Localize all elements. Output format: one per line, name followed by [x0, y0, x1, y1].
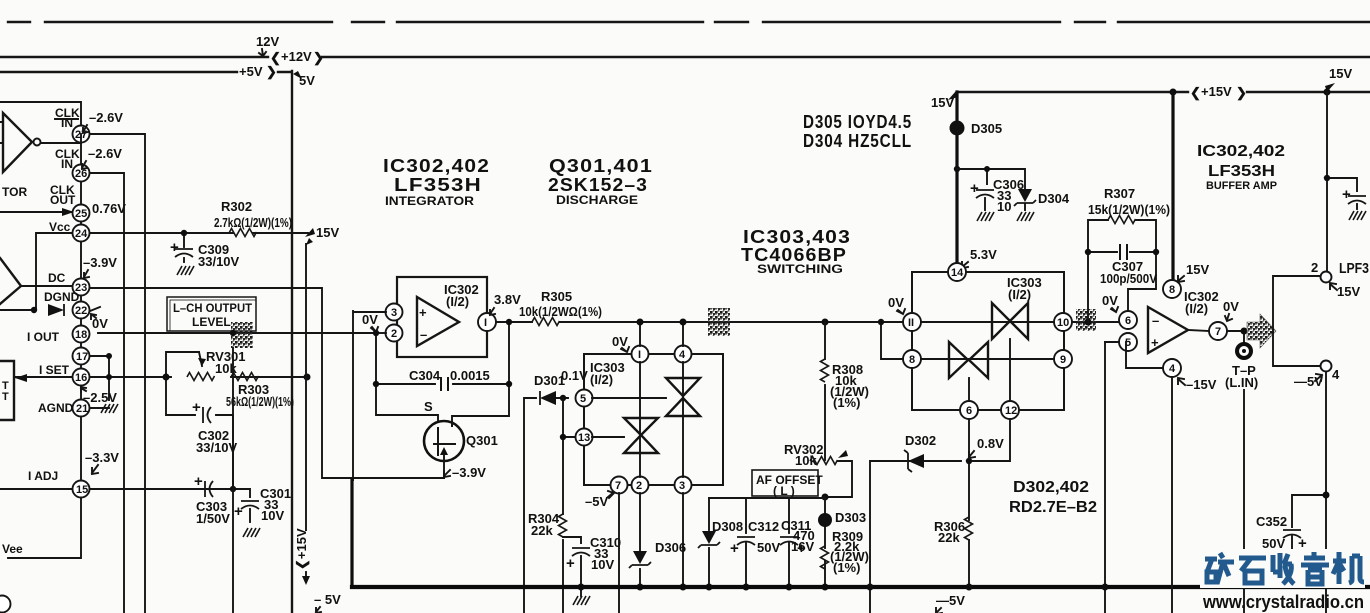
svg-text:12: 12	[1005, 405, 1017, 417]
svg-text:IC303,403: IC303,403	[743, 227, 851, 247]
svg-text:I SET: I SET	[39, 363, 70, 377]
svg-text:10: 10	[997, 199, 1011, 214]
svg-text:100p/500V: 100p/500V	[1100, 271, 1157, 286]
svg-text:15V: 15V	[316, 225, 339, 240]
svg-text:22k: 22k	[531, 523, 553, 538]
svg-text:–2.5V: –2.5V	[83, 390, 117, 405]
svg-text:❯: ❯	[1236, 85, 1247, 101]
svg-text:+: +	[194, 473, 203, 490]
svg-text:–3.3V: –3.3V	[85, 450, 119, 465]
svg-text:13: 13	[578, 432, 590, 444]
svg-text:10: 10	[1057, 317, 1069, 329]
svg-text:+: +	[170, 239, 179, 256]
svg-text:–: –	[420, 327, 427, 342]
svg-text:IN: IN	[61, 157, 73, 171]
svg-text:–3.9V: –3.9V	[83, 255, 117, 270]
svg-text:+12V: +12V	[281, 49, 312, 64]
svg-text:2: 2	[636, 480, 642, 492]
svg-text:+: +	[1342, 186, 1351, 203]
svg-text:14: 14	[951, 267, 964, 279]
svg-text:T: T	[2, 391, 9, 403]
svg-text:R307: R307	[1104, 186, 1135, 201]
svg-text:LEVEL: LEVEL	[192, 315, 231, 329]
svg-text:50V: 50V	[757, 540, 780, 555]
svg-text:DISCHARGE: DISCHARGE	[556, 193, 638, 207]
svg-text:22: 22	[75, 305, 87, 317]
svg-text:❮: ❮	[1190, 85, 1201, 101]
svg-text:OUT: OUT	[50, 193, 76, 207]
svg-text:6: 6	[1125, 315, 1131, 327]
svg-text:3.8V: 3.8V	[494, 292, 521, 307]
svg-text:–2.6V: –2.6V	[89, 110, 123, 125]
svg-text:50V: 50V	[1262, 536, 1285, 551]
svg-text:D304: D304	[1038, 191, 1070, 206]
svg-text:Vcc: Vcc	[49, 220, 71, 234]
svg-text:( L ): ( L )	[773, 484, 795, 498]
svg-text:D305 IOYD4.5: D305 IOYD4.5	[803, 112, 912, 132]
svg-text:I OUT: I OUT	[27, 330, 60, 344]
svg-text:17: 17	[76, 351, 88, 363]
svg-text:+5V: +5V	[239, 64, 263, 79]
svg-text:9: 9	[1060, 354, 1066, 366]
svg-text:R305: R305	[541, 289, 572, 304]
svg-text:1/50V: 1/50V	[196, 511, 230, 526]
svg-text:2SK152–3: 2SK152–3	[548, 175, 648, 195]
svg-text:C312: C312	[748, 519, 779, 534]
svg-text:3: 3	[679, 480, 685, 492]
svg-text:0.76V: 0.76V	[92, 201, 126, 216]
svg-text:33/10V: 33/10V	[198, 254, 240, 269]
svg-text:–2.6V: –2.6V	[88, 146, 122, 161]
svg-text:(I/2): (I/2)	[1185, 301, 1208, 316]
svg-text:16: 16	[75, 372, 87, 384]
svg-text:(L.IN): (L.IN)	[1225, 375, 1258, 390]
svg-text:(I/2): (I/2)	[590, 372, 613, 387]
svg-text:TOR: TOR	[2, 185, 27, 199]
svg-text:D303: D303	[835, 510, 866, 525]
svg-text:0V: 0V	[1102, 293, 1118, 308]
svg-text:5V: 5V	[299, 73, 315, 88]
svg-text:SWITCHING: SWITCHING	[757, 262, 843, 276]
svg-text:15V: 15V	[1186, 262, 1209, 277]
svg-text:15V: 15V	[1329, 66, 1352, 81]
svg-text:S: S	[424, 399, 433, 414]
svg-text:BUFFER AMP: BUFFER AMP	[1206, 180, 1277, 192]
svg-text:C304: C304	[409, 368, 441, 383]
svg-text:D304 HZ5CLL: D304 HZ5CLL	[803, 131, 912, 151]
svg-text:+: +	[730, 540, 739, 557]
svg-text:10k(1/2WΩ(1%): 10k(1/2WΩ(1%)	[519, 304, 602, 319]
svg-text:2: 2	[1311, 260, 1318, 275]
svg-text:4: 4	[679, 349, 686, 361]
svg-text:56kΩ(1/2W)(1%): 56kΩ(1/2W)(1%)	[226, 394, 294, 409]
svg-text:(1%): (1%)	[833, 560, 860, 575]
svg-text:R302: R302	[221, 199, 252, 214]
svg-text:D308: D308	[712, 519, 743, 534]
svg-text:D306: D306	[655, 540, 686, 555]
svg-text:+15V: +15V	[1201, 84, 1232, 99]
svg-text:6: 6	[966, 405, 972, 417]
svg-text:I: I	[638, 349, 641, 361]
svg-text:+: +	[1151, 335, 1159, 350]
svg-text:12V: 12V	[256, 34, 279, 49]
svg-text:(I/2): (I/2)	[446, 294, 469, 309]
svg-text:–: –	[1152, 313, 1159, 328]
svg-text:+: +	[566, 555, 575, 572]
svg-text:–5V: –5V	[585, 494, 608, 509]
svg-text:IC302,402: IC302,402	[383, 156, 490, 176]
svg-text:DC: DC	[48, 271, 66, 285]
svg-text:D305: D305	[971, 121, 1002, 136]
svg-text:3: 3	[391, 307, 397, 319]
svg-text:Q301,401: Q301,401	[549, 156, 653, 176]
svg-text:10V: 10V	[261, 508, 284, 523]
svg-text:LPF3: LPF3	[1339, 260, 1369, 277]
svg-text:❮+15V: ❮+15V	[294, 528, 310, 570]
svg-text:0V: 0V	[612, 334, 628, 349]
svg-text:0V: 0V	[888, 295, 904, 310]
svg-text:AGND: AGND	[38, 401, 74, 415]
svg-text:IC302,402: IC302,402	[1197, 143, 1285, 160]
svg-text:0.8V: 0.8V	[977, 436, 1004, 451]
svg-text:(1%): (1%)	[833, 395, 860, 410]
svg-text:DGND: DGND	[44, 290, 80, 304]
svg-text:15V: 15V	[1337, 284, 1360, 299]
svg-text:I ADJ: I ADJ	[28, 469, 58, 483]
svg-text:RD2.7E–B2: RD2.7E–B2	[1009, 499, 1097, 516]
svg-text:10V: 10V	[591, 557, 614, 572]
svg-text:D302,402: D302,402	[1013, 479, 1089, 496]
svg-text:www.crystalradio.cn: www.crystalradio.cn	[1202, 592, 1364, 612]
svg-text:22k: 22k	[938, 530, 960, 545]
svg-text:–3.9V: –3.9V	[452, 465, 486, 480]
svg-text:+: +	[192, 399, 201, 416]
svg-text:7: 7	[1215, 326, 1221, 338]
svg-text:(I/2): (I/2)	[1008, 287, 1031, 302]
svg-text:—5V: —5V	[936, 593, 965, 608]
svg-text:4: 4	[1332, 367, 1340, 382]
svg-text:Vee: Vee	[2, 542, 23, 556]
svg-text:Q301: Q301	[466, 433, 498, 448]
svg-text:INTEGRATOR: INTEGRATOR	[385, 194, 474, 208]
svg-text:0V: 0V	[1223, 299, 1239, 314]
svg-text:+: +	[234, 503, 243, 520]
svg-text:+: +	[419, 305, 427, 320]
svg-text:I: I	[484, 317, 487, 329]
svg-text:16V: 16V	[791, 539, 814, 554]
svg-text:24: 24	[75, 228, 88, 240]
svg-text:❯: ❯	[266, 64, 277, 80]
svg-text:—5V: —5V	[1294, 374, 1323, 389]
svg-text:D302: D302	[905, 433, 936, 448]
svg-text:2: 2	[391, 328, 397, 340]
svg-text:–15V: –15V	[1186, 377, 1217, 392]
svg-text:33/10V: 33/10V	[196, 440, 238, 455]
svg-text:LF353H: LF353H	[1208, 163, 1275, 180]
svg-text:+: +	[970, 180, 979, 197]
svg-text:25: 25	[75, 208, 87, 220]
svg-text:5.3V: 5.3V	[970, 247, 997, 262]
svg-text:0V: 0V	[92, 316, 108, 331]
svg-text:II: II	[908, 317, 914, 329]
svg-text:L–CH OUTPUT: L–CH OUTPUT	[173, 301, 253, 315]
svg-text:5: 5	[580, 393, 586, 405]
svg-text:0.0015: 0.0015	[450, 368, 490, 383]
svg-text:15k(1/2W)(1%): 15k(1/2W)(1%)	[1088, 202, 1170, 217]
svg-text:LF353H: LF353H	[394, 175, 482, 195]
svg-text:4: 4	[1169, 363, 1176, 375]
svg-text:❯: ❯	[313, 50, 324, 66]
svg-text:– 5V: – 5V	[314, 592, 341, 607]
svg-text:0V: 0V	[362, 312, 378, 327]
svg-text:8: 8	[1169, 284, 1175, 296]
svg-text:15: 15	[76, 484, 88, 496]
svg-text:C352: C352	[1256, 514, 1287, 529]
svg-text:7: 7	[615, 480, 621, 492]
svg-text:18: 18	[75, 329, 87, 341]
svg-text:2.7kΩ(1/2W)(1%): 2.7kΩ(1/2W)(1%)	[214, 215, 292, 230]
svg-text:8: 8	[909, 354, 915, 366]
